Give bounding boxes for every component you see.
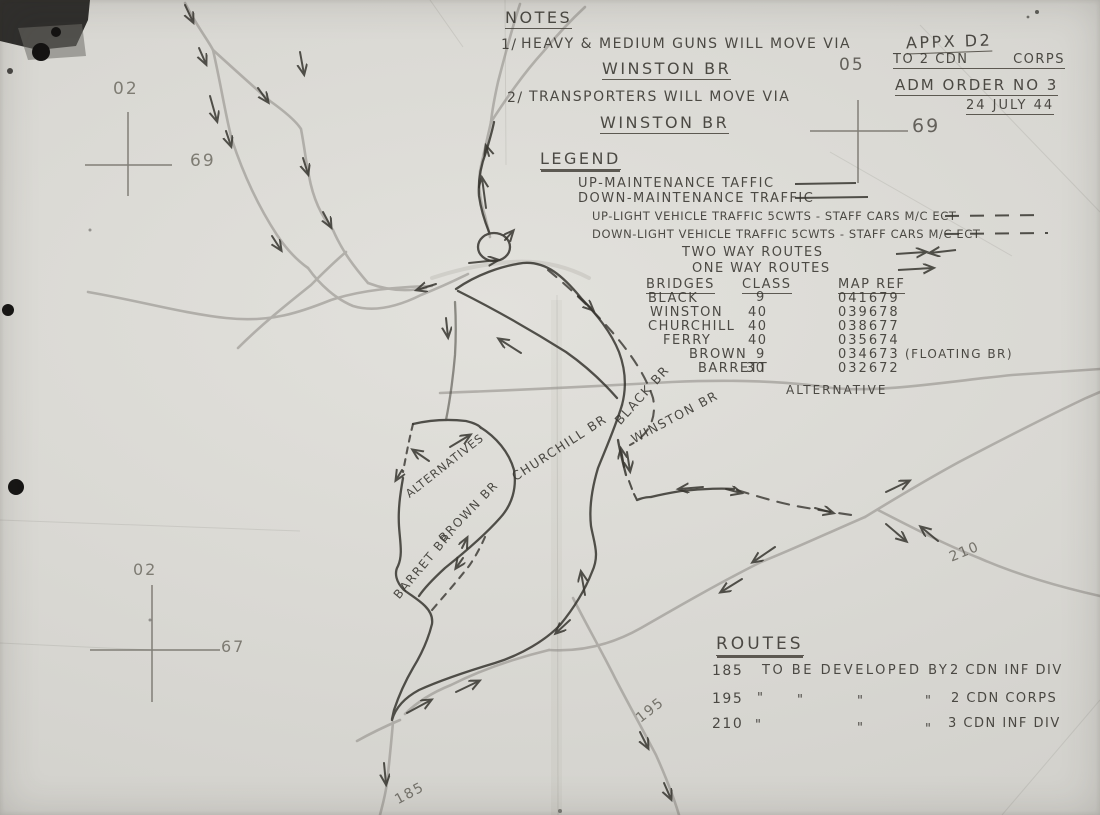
legend-one-way: ONE WAY ROUTES xyxy=(692,261,831,276)
bridge-row-name: WINSTON xyxy=(650,305,723,320)
fold-shadow xyxy=(551,300,562,815)
grid-easting-top-left: 02 xyxy=(113,79,139,99)
legend-up-maintenance: UP-MAINTENANCE TAFFIC xyxy=(578,176,775,191)
notes-title: NOTES xyxy=(505,8,572,29)
ditto-mark: " xyxy=(925,694,932,709)
stamp-date: 24 JULY 44 xyxy=(966,98,1054,115)
bridge-row-mapref: 034673 xyxy=(838,347,900,362)
stamp-order-title: ADM ORDER NO 3 xyxy=(895,76,1058,96)
bridge-row-class: 9 xyxy=(756,290,766,305)
route-row-number: 185 xyxy=(712,663,743,679)
bridge-row-class: 9 xyxy=(756,347,766,362)
bridge-row-class: 40 xyxy=(748,333,768,348)
scan-artifacts xyxy=(0,0,1039,813)
bridges-header-class: CLASS xyxy=(742,277,792,294)
bridge-row-class: 40 xyxy=(748,319,768,334)
grid-northing-top-left: 69 xyxy=(190,151,216,171)
bridge-row-mapref: 039678 xyxy=(838,305,900,320)
bridge-row-name: BROWN xyxy=(689,347,747,362)
bridge-row-mapref: 035674 xyxy=(838,333,900,348)
grid-northing-bottom-left: 67 xyxy=(221,637,245,656)
routes-title: ROUTES xyxy=(716,634,804,656)
ditto-mark: " xyxy=(857,721,864,736)
ditto-mark: " xyxy=(755,718,762,733)
route-row-unit: 2 CDN INF DIV xyxy=(950,663,1063,678)
note-2-number: 2/ xyxy=(507,90,524,106)
route-row-number: 195 xyxy=(712,691,743,707)
bridge-row-note: (FLOATING BR) xyxy=(905,347,1013,361)
stamp-addressee: TO 2 CDN CORPS xyxy=(893,52,1065,69)
stamp-addressee-right: CORPS xyxy=(1013,52,1065,67)
bridge-row-mapref: 038677 xyxy=(838,319,900,334)
bridge-row-mapref: 032672 xyxy=(838,361,900,376)
ditto-mark: " xyxy=(757,691,764,706)
note-1-text: HEAVY & MEDIUM GUNS WILL MOVE VIA xyxy=(521,36,851,52)
note-1-number: 1/ xyxy=(501,37,518,53)
legend-two-way: TWO WAY ROUTES xyxy=(682,245,823,260)
bridge-row-class: 40 xyxy=(748,305,768,320)
ditto-mark: " xyxy=(797,693,804,708)
bridge-row-name: CHURCHILL xyxy=(648,319,735,334)
legend-down-maintenance: DOWN-MAINTENANCE TRAFFIC xyxy=(578,191,814,206)
pencil-roads xyxy=(88,3,1100,815)
legend-title: LEGEND xyxy=(540,149,621,170)
bridge-row-name: FERRY xyxy=(663,333,711,348)
legend-down-light-vehicle: DOWN-LIGHT VEHICLE TRAFFIC 5CWTS - STAFF… xyxy=(592,227,980,241)
note-2-via: WINSTON BR xyxy=(600,113,729,134)
grid-northing-top-right: 69 xyxy=(912,115,940,137)
bridge-row-mapref: 041679 xyxy=(838,291,900,306)
scanned-map-page: NOTES 1/ HEAVY & MEDIUM GUNS WILL MOVE V… xyxy=(0,0,1100,815)
stamp-addressee-left: TO 2 CDN xyxy=(893,52,969,67)
bridge-row-name: BLACK xyxy=(648,291,698,306)
legend-up-light-vehicle: UP-LIGHT VEHICLE TRAFFIC 5CWTS - STAFF C… xyxy=(592,209,956,223)
route-row-text: TO BE DEVELOPED BY xyxy=(762,663,949,678)
ditto-mark: " xyxy=(857,694,864,709)
grid-easting-bottom-left: 02 xyxy=(133,560,157,579)
note-1-via: WINSTON BR xyxy=(602,59,731,80)
stamp-appendix: APPX D2 xyxy=(906,31,993,55)
map-label-alternative-route: ALTERNATIVE xyxy=(786,383,887,397)
bridge-row-class: 30 xyxy=(746,361,766,376)
route-row-number: 210 xyxy=(712,716,743,732)
route-row-unit: 2 CDN CORPS xyxy=(951,691,1057,706)
ditto-mark: " xyxy=(925,722,932,737)
grid-easting-top-right: 05 xyxy=(839,55,865,75)
note-2-text: TRANSPORTERS WILL MOVE VIA xyxy=(529,89,790,105)
route-row-unit: 3 CDN INF DIV xyxy=(948,716,1061,731)
